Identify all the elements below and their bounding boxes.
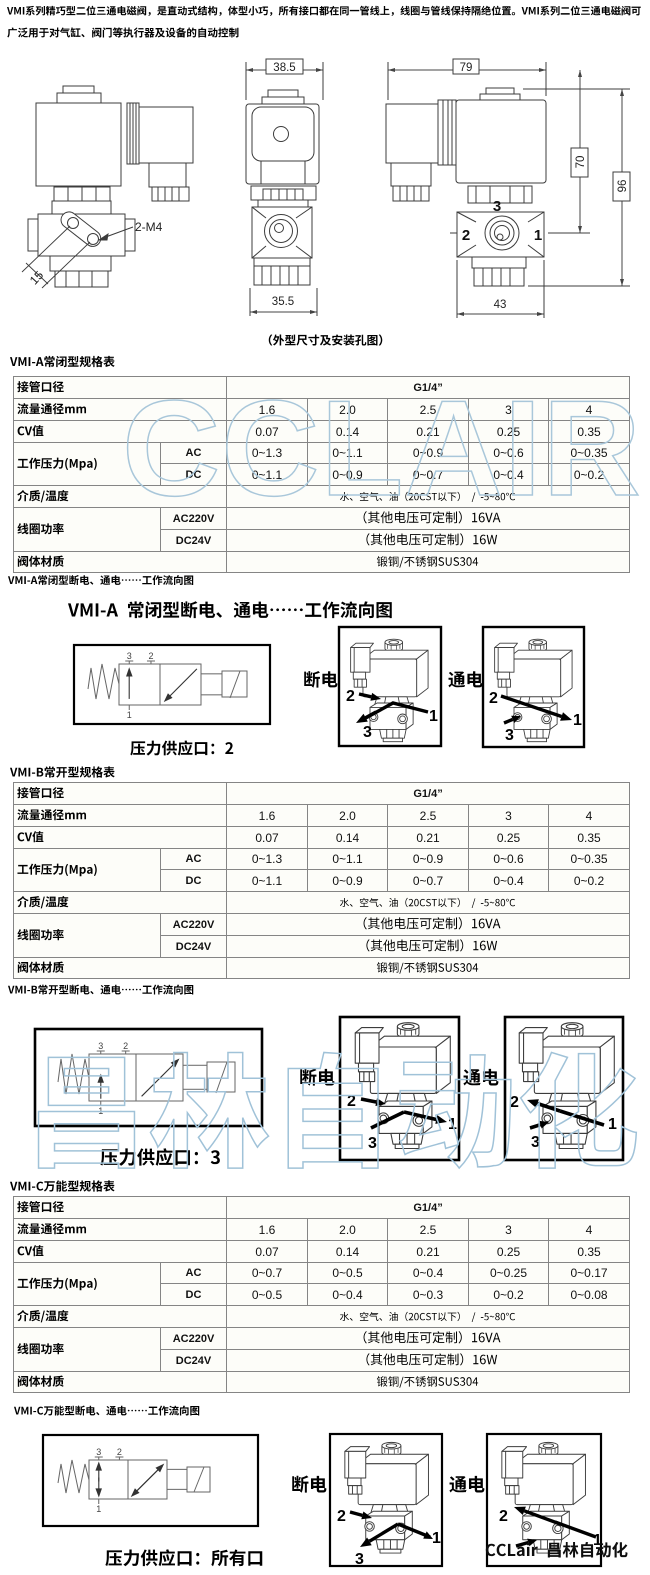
svg-text:43: 43 bbox=[494, 299, 507, 311]
svg-text:3: 3 bbox=[98, 1041, 103, 1051]
svg-text:2: 2 bbox=[510, 1094, 519, 1111]
svg-text:2: 2 bbox=[148, 651, 153, 661]
svg-text:1: 1 bbox=[534, 227, 542, 244]
svg-text:70: 70 bbox=[575, 156, 587, 169]
svg-text:2: 2 bbox=[499, 1508, 508, 1525]
svg-text:79: 79 bbox=[460, 62, 473, 74]
svg-text:2: 2 bbox=[462, 227, 470, 244]
svg-text:2-M4: 2-M4 bbox=[135, 220, 163, 234]
svg-text:1: 1 bbox=[432, 1530, 441, 1547]
svg-text:38.5: 38.5 bbox=[273, 62, 295, 74]
svg-text:3: 3 bbox=[531, 1134, 540, 1151]
svg-text:96: 96 bbox=[617, 180, 629, 193]
svg-text:3: 3 bbox=[355, 1551, 364, 1568]
svg-text:1: 1 bbox=[608, 1116, 617, 1133]
svg-text:1: 1 bbox=[573, 712, 582, 729]
svg-text:3: 3 bbox=[505, 727, 514, 744]
svg-text:2: 2 bbox=[117, 1447, 122, 1457]
svg-text:1: 1 bbox=[448, 1116, 457, 1133]
svg-text:1: 1 bbox=[96, 1504, 101, 1514]
svg-text:1: 1 bbox=[429, 708, 438, 725]
svg-text:2: 2 bbox=[346, 688, 355, 705]
svg-text:3: 3 bbox=[493, 198, 501, 215]
svg-text:1: 1 bbox=[127, 710, 132, 720]
svg-text:2: 2 bbox=[123, 1041, 128, 1051]
svg-text:3: 3 bbox=[368, 1135, 377, 1152]
svg-text:2: 2 bbox=[347, 1093, 356, 1110]
svg-text:1: 1 bbox=[98, 1106, 103, 1116]
svg-text:1: 1 bbox=[593, 1532, 602, 1549]
svg-text:3: 3 bbox=[127, 651, 132, 661]
svg-text:3: 3 bbox=[363, 724, 372, 741]
svg-text:2: 2 bbox=[337, 1508, 346, 1525]
svg-text:3: 3 bbox=[96, 1447, 101, 1457]
svg-text:35.5: 35.5 bbox=[272, 296, 294, 308]
svg-text:15: 15 bbox=[27, 268, 47, 288]
svg-text:2: 2 bbox=[489, 690, 498, 707]
